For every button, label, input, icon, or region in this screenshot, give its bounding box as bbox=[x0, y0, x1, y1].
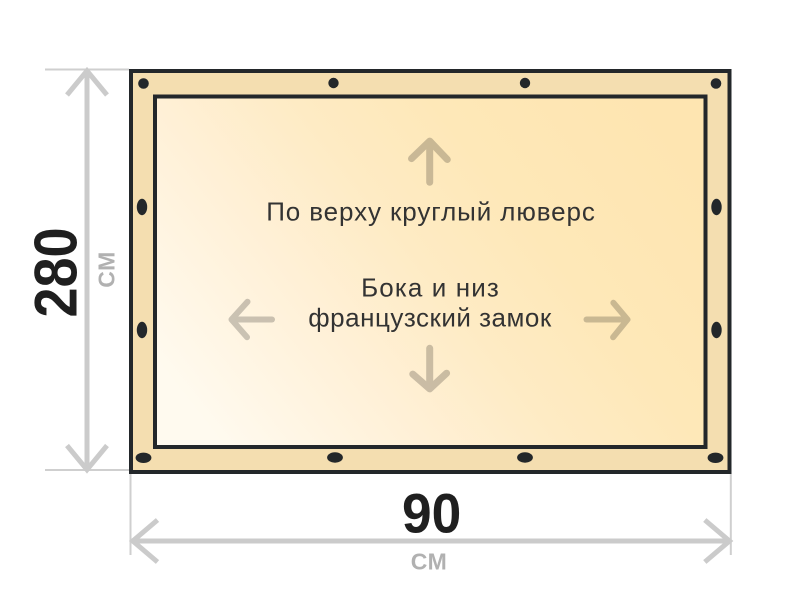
svg-text:СМ: СМ bbox=[411, 549, 447, 575]
svg-text:По верху круглый люверс: По верху круглый люверс bbox=[266, 197, 596, 227]
svg-text:280: 280 bbox=[23, 227, 90, 317]
svg-text:французский замок: французский замок bbox=[308, 303, 552, 333]
svg-text:90: 90 bbox=[402, 483, 461, 545]
svg-text:СМ: СМ bbox=[94, 251, 120, 287]
svg-text:Бока и низ: Бока и низ bbox=[361, 273, 500, 303]
